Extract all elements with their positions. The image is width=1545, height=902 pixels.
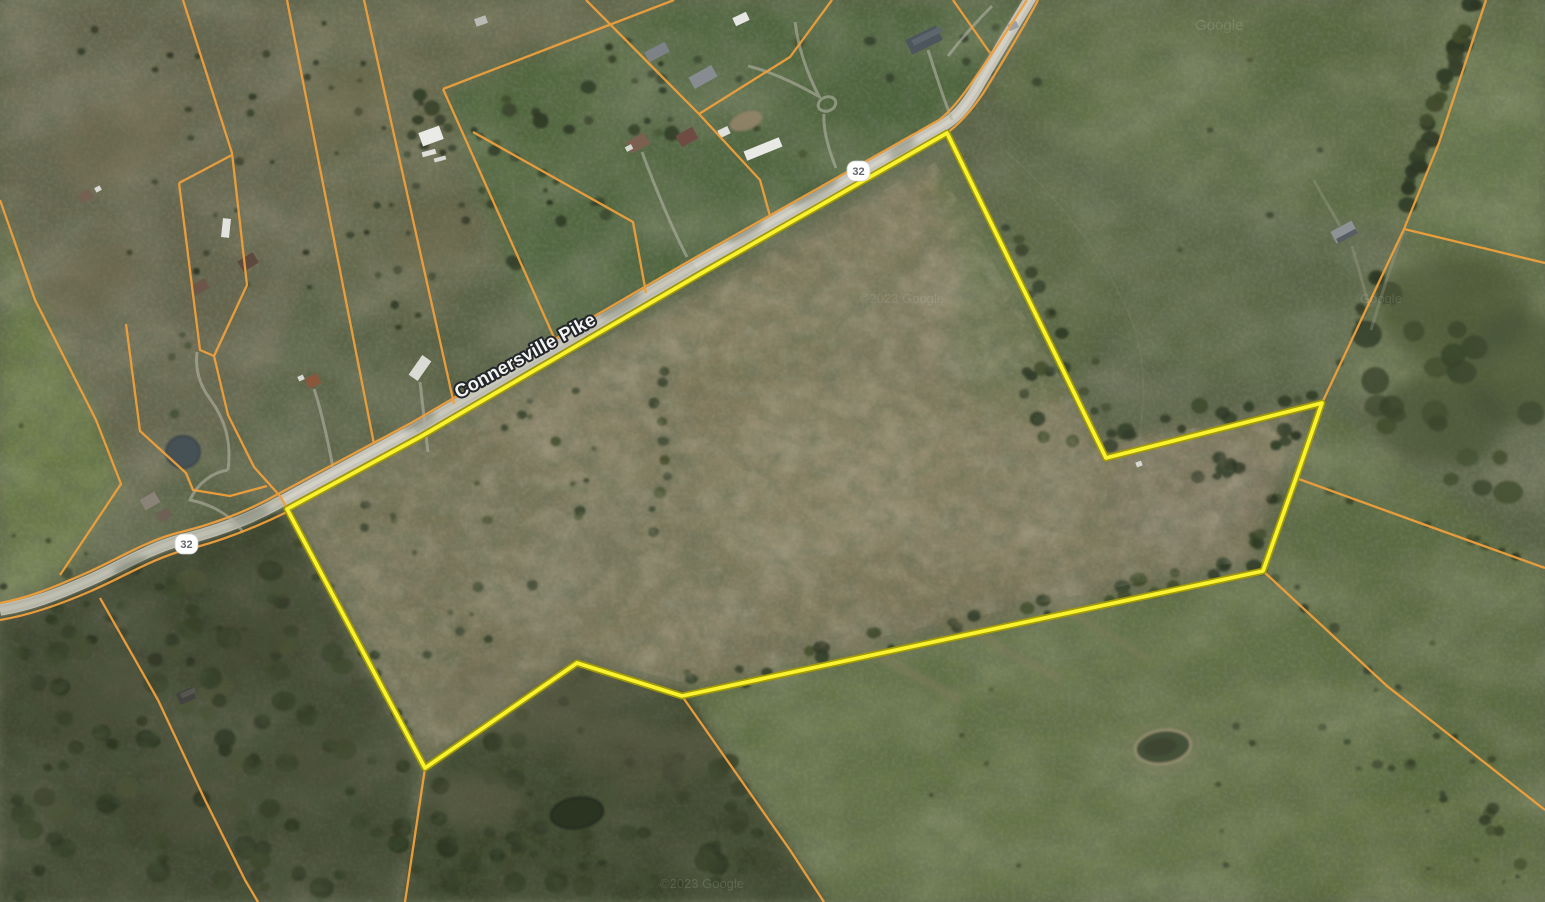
svg-text:©2023 Google: ©2023 Google (660, 876, 744, 891)
svg-text:©2023 Google: ©2023 Google (860, 291, 944, 306)
svg-text:32: 32 (180, 539, 192, 551)
svg-text:Google: Google (1195, 17, 1243, 34)
svg-text:Google: Google (1360, 291, 1402, 306)
svg-text:32: 32 (852, 166, 864, 178)
